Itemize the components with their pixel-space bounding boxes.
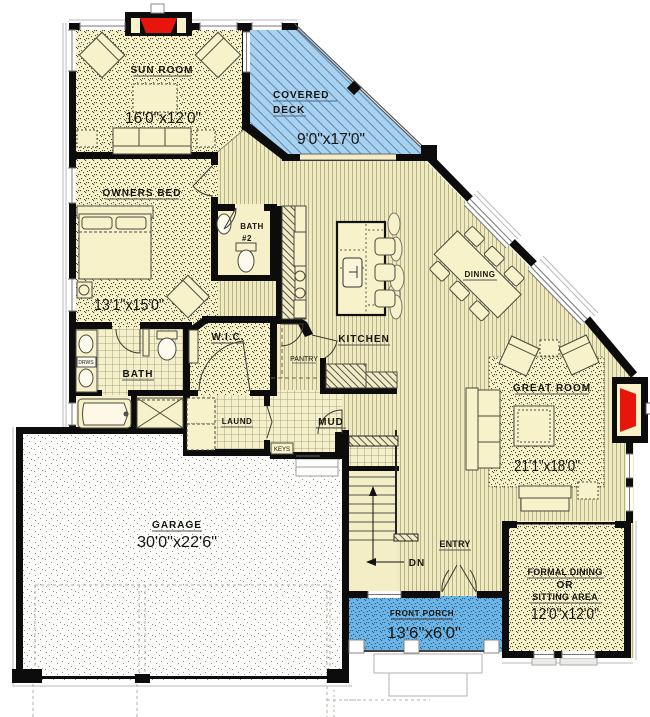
svg-text:OR: OR: [557, 580, 574, 591]
svg-text:16'0"x12'0": 16'0"x12'0": [125, 110, 201, 127]
svg-text:ENTRY: ENTRY: [439, 539, 470, 549]
svg-text:30'0"x22'6": 30'0"x22'6": [137, 534, 217, 551]
svg-text:KITCHEN: KITCHEN: [338, 334, 389, 345]
svg-text:13'6"x6'0": 13'6"x6'0": [387, 625, 461, 642]
svg-text:BATH: BATH: [240, 222, 264, 231]
svg-text:DN: DN: [409, 558, 425, 569]
svg-text:21'1"x18'0": 21'1"x18'0": [514, 458, 580, 475]
svg-text:PANTRY: PANTRY: [290, 356, 318, 363]
svg-text:FORMAL DINING: FORMAL DINING: [528, 567, 603, 577]
svg-text:#2: #2: [242, 234, 252, 243]
svg-text:DINING: DINING: [465, 270, 496, 279]
svg-text:SUN ROOM: SUN ROOM: [131, 65, 194, 76]
svg-text:OWNERS BED: OWNERS BED: [103, 188, 182, 199]
svg-text:BATH: BATH: [122, 369, 153, 380]
svg-text:GARAGE: GARAGE: [152, 520, 202, 531]
svg-text:9'0"x17'0": 9'0"x17'0": [297, 131, 365, 148]
svg-text:W.I.C.: W.I.C.: [211, 332, 244, 343]
svg-text:DRWS: DRWS: [78, 360, 94, 366]
svg-text:12'0"x12'0": 12'0"x12'0": [531, 606, 599, 623]
svg-text:GREAT ROOM: GREAT ROOM: [513, 383, 591, 394]
svg-text:13'1"x15'0": 13'1"x15'0": [94, 297, 164, 314]
svg-text:COVERED: COVERED: [273, 90, 329, 101]
svg-text:MUD: MUD: [318, 417, 344, 428]
svg-text:KEYS: KEYS: [274, 447, 290, 453]
svg-text:SITTING AREA: SITTING AREA: [532, 592, 598, 602]
svg-text:DECK: DECK: [273, 105, 305, 116]
svg-text:FRONT PORCH: FRONT PORCH: [390, 609, 454, 618]
svg-text:LAUND: LAUND: [222, 417, 253, 426]
